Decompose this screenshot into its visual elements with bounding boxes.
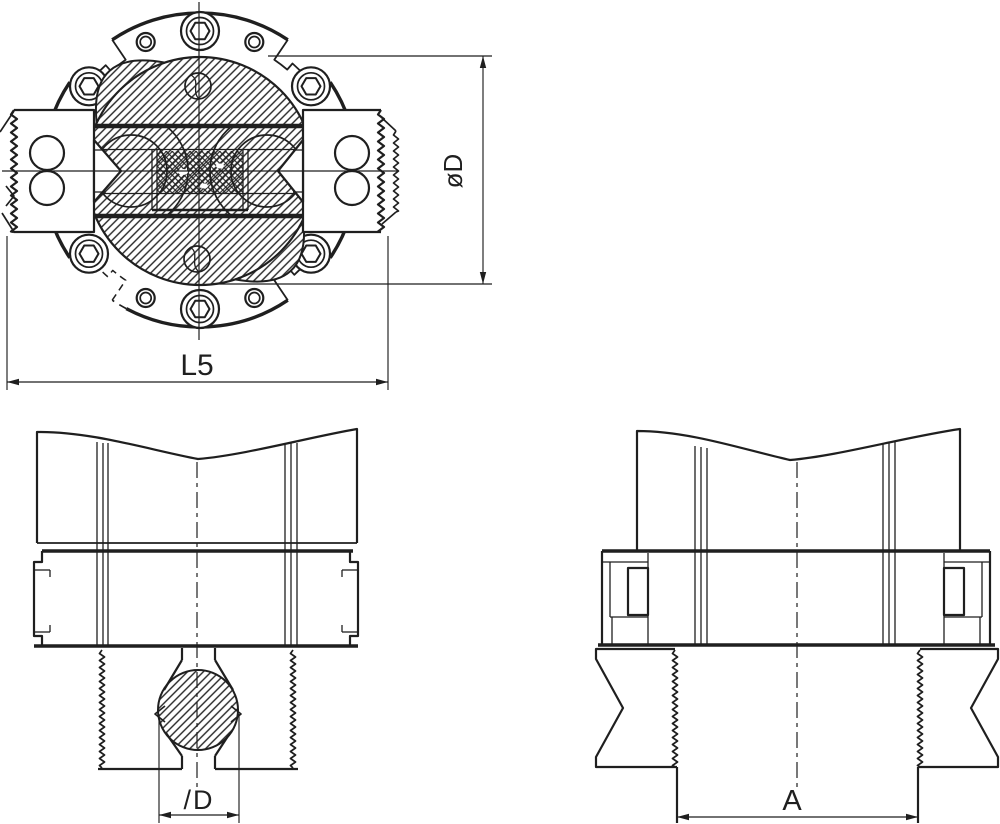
clamping-device-drawing: øD L5 [0, 0, 1000, 824]
drawing-line [227, 812, 239, 818]
clamped-bar-section [158, 670, 238, 750]
label-front-diameter: øD [438, 154, 468, 189]
label-bar-diameter: /D [184, 785, 215, 815]
lock-pin-right [944, 568, 964, 615]
label-front-width: L5 [180, 349, 213, 382]
section-view-left: /D [34, 429, 358, 823]
hole [137, 33, 155, 51]
hex-bolt [70, 235, 108, 273]
drawing-line [291, 650, 296, 768]
hole [245, 289, 263, 307]
section-view-right: A [596, 429, 998, 823]
drawing-line [30, 136, 64, 170]
lock-pin-left [628, 568, 648, 615]
drawing-line [159, 812, 171, 818]
flange-outline [34, 551, 358, 646]
hole [245, 33, 263, 51]
hex-bolt [181, 12, 219, 50]
drawing-line [918, 650, 923, 767]
hex-bolt [292, 67, 330, 105]
drawing-line [216, 164, 224, 169]
thread-texture [157, 151, 243, 193]
hole [137, 289, 155, 307]
drawing-line [200, 184, 208, 189]
drawing-line [596, 649, 677, 767]
dimension-spindle-width: A [677, 785, 918, 820]
drawing-line [673, 650, 678, 767]
drawing-line [918, 649, 998, 767]
drawing-line [112, 300, 126, 308]
drawing-line [906, 814, 918, 820]
body-outline [637, 429, 960, 551]
drawing-line [376, 379, 388, 385]
drawing-line [178, 169, 188, 175]
drawing-line [677, 814, 689, 820]
drawing-line [480, 56, 486, 68]
front-view: øD L5 [0, 2, 492, 390]
groove-lines [695, 442, 895, 645]
hex-bolt [181, 290, 219, 328]
drawing-line [100, 650, 105, 768]
drawing-line [480, 272, 486, 284]
label-spindle-width: A [782, 785, 802, 817]
drawing-line [335, 171, 369, 205]
drawing-line [30, 171, 64, 205]
technical-drawing-page: øD L5 [0, 0, 1000, 824]
drawing-line [335, 136, 369, 170]
drawing-line [7, 379, 19, 385]
